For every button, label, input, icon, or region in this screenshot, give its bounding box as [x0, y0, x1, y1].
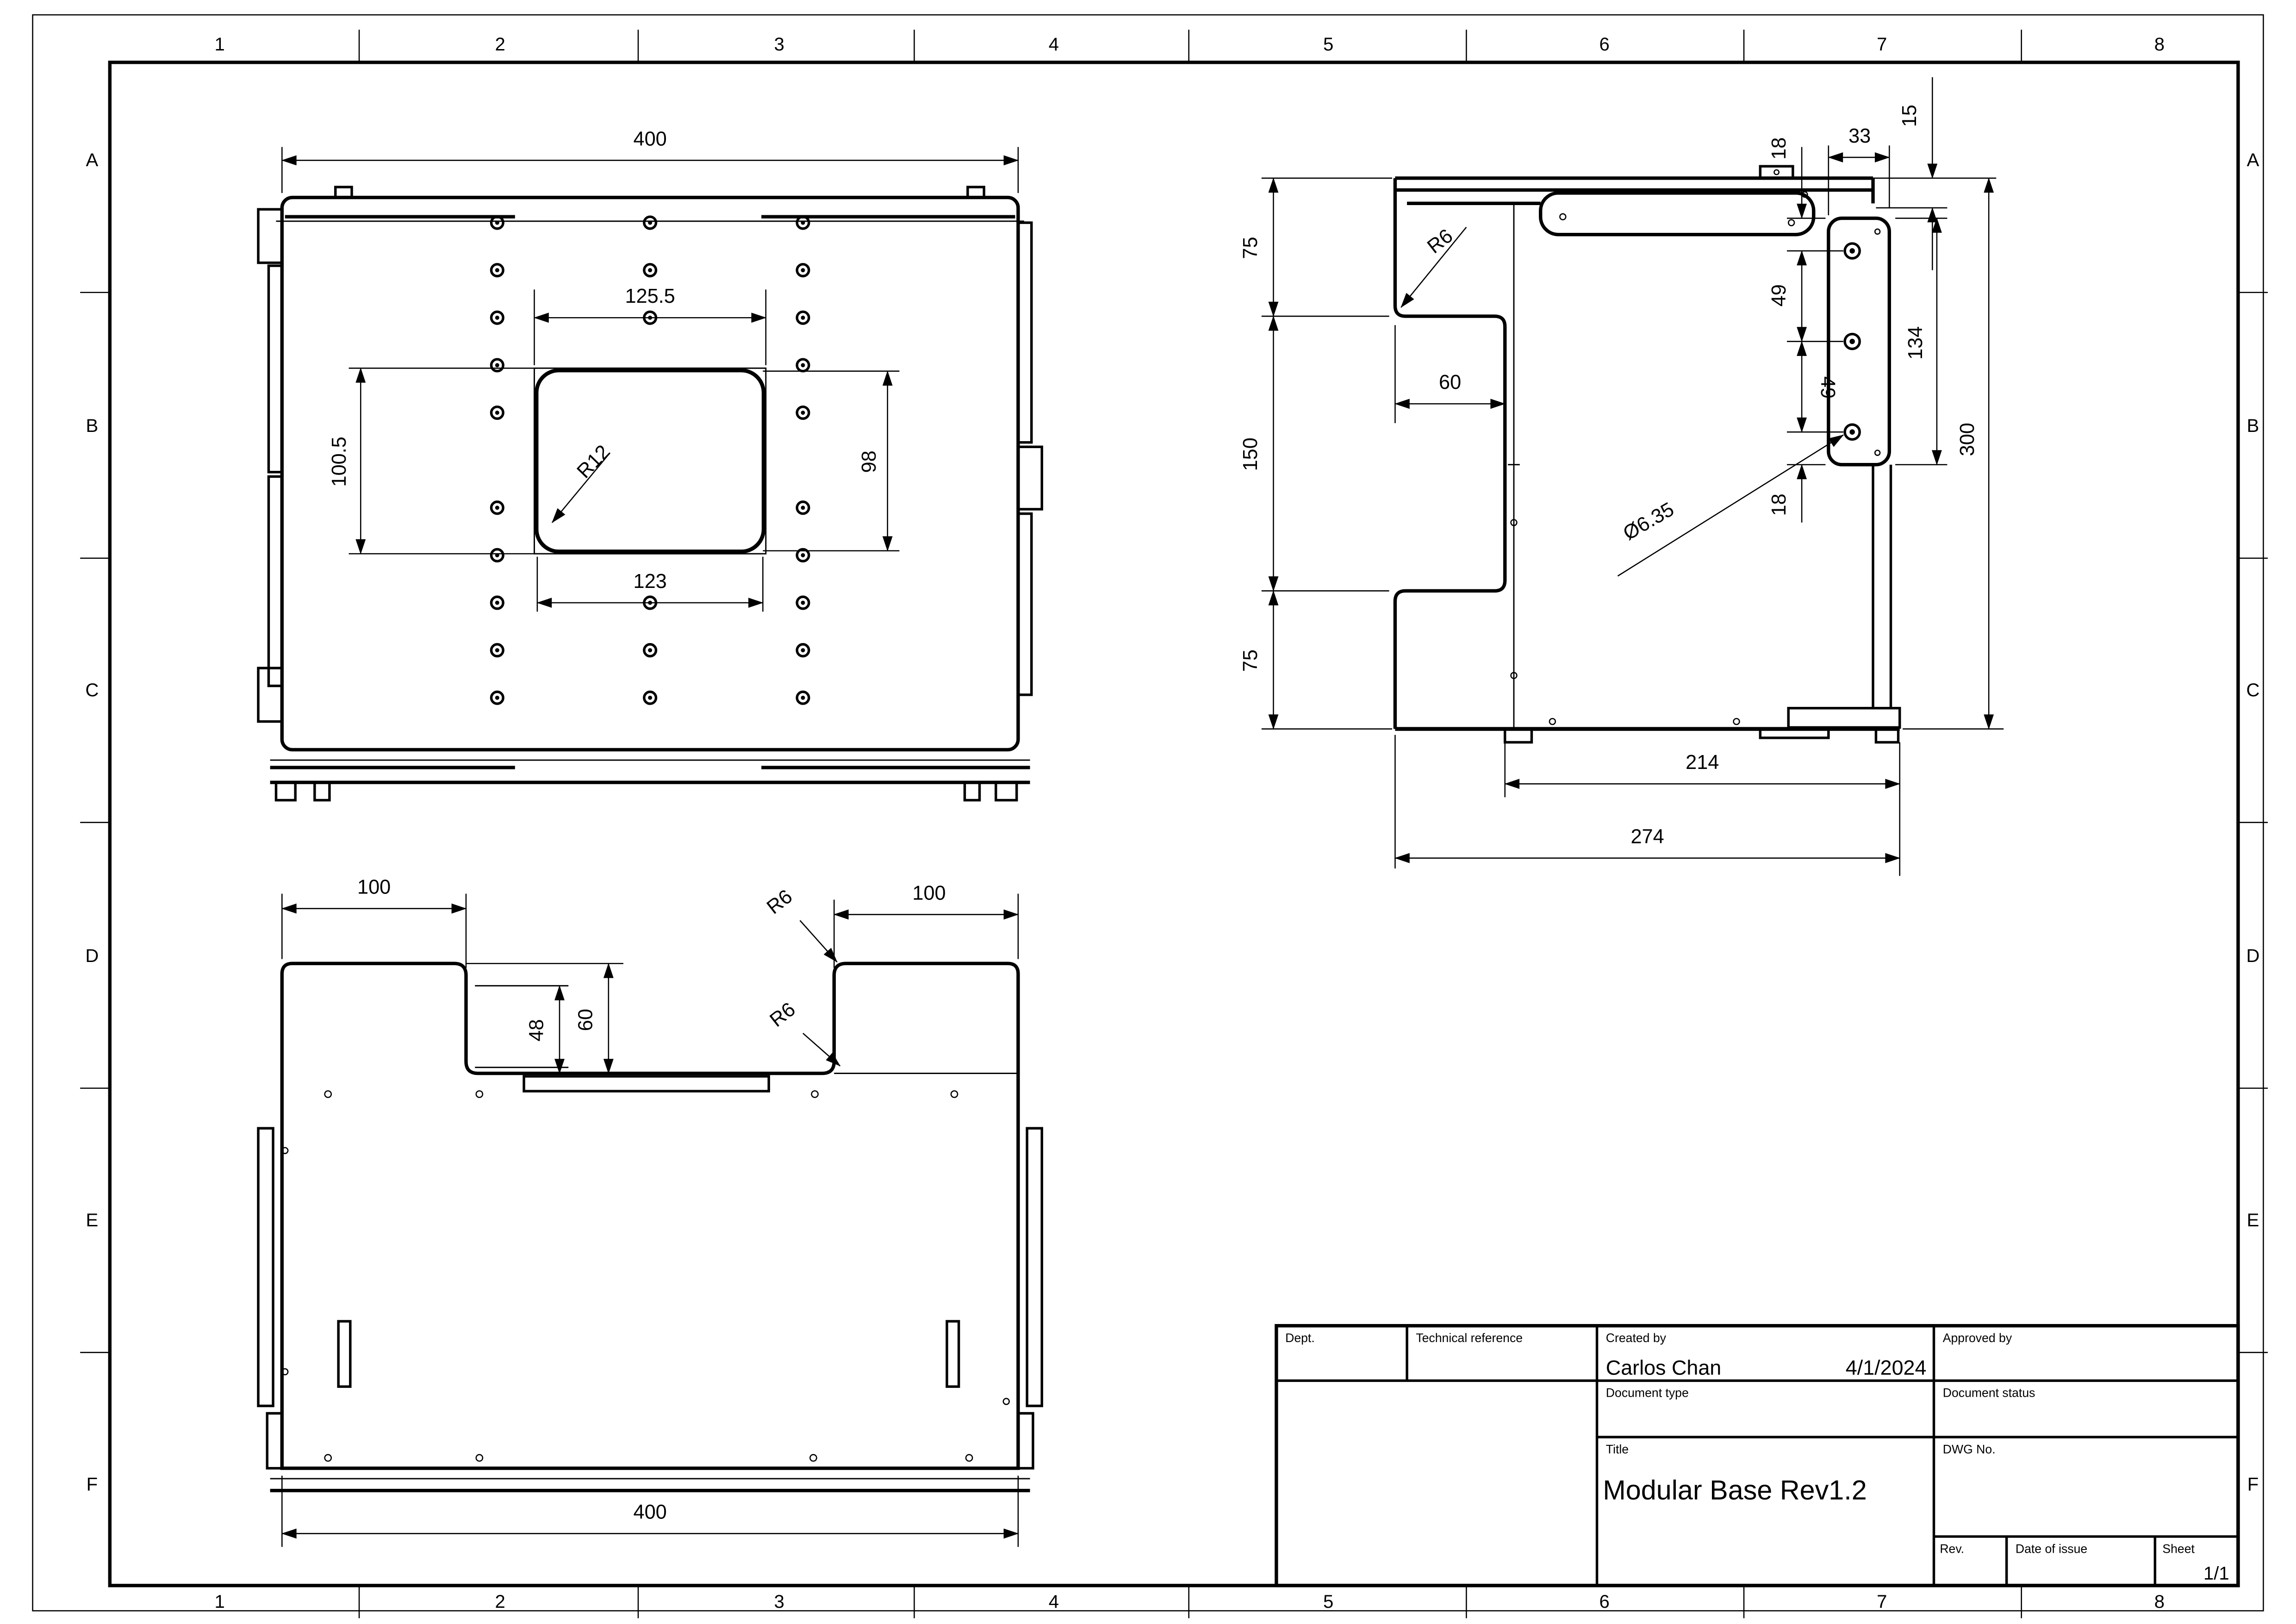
svg-text:R6: R6: [763, 885, 796, 918]
hole-center: [495, 268, 499, 272]
document-type-label: Document type: [1606, 1386, 1689, 1400]
approved-by-label: Approved by: [1943, 1331, 2012, 1345]
svg-text:100: 100: [912, 882, 946, 904]
created-by-label: Created by: [1606, 1331, 1667, 1345]
dim-notch-inner: 48: [526, 986, 560, 1073]
svg-text:R12: R12: [572, 441, 614, 482]
dim-side-left: 75 150 75: [1239, 178, 1392, 729]
svg-text:49: 49: [1817, 376, 1839, 399]
top-view: 400 125.5 123 100.5 98 R12: [258, 128, 1042, 800]
svg-text:400: 400: [633, 1501, 666, 1524]
grid-col-label: 6: [1599, 34, 1609, 55]
hole-center: [801, 600, 805, 605]
svg-text:75: 75: [1239, 237, 1262, 259]
grid-row-label: D: [85, 946, 99, 966]
document-status-label: Document status: [1943, 1386, 2035, 1400]
dim-corner-radius: R12: [552, 441, 614, 523]
grid-row-label: E: [86, 1210, 98, 1230]
grid-col-label: 3: [774, 34, 784, 55]
hole-center: [801, 696, 805, 700]
grid-row-labels: A B C D E F A B C D E F: [85, 150, 2259, 1495]
central-cutout: [536, 370, 764, 551]
grid-col-label: 2: [495, 34, 505, 55]
sheet-value: 1/1: [2203, 1563, 2229, 1584]
dim-tab-right: 100: [834, 882, 1018, 968]
svg-text:18: 18: [1768, 137, 1790, 160]
hole-center: [495, 696, 499, 700]
grid-col-label: 4: [1049, 34, 1059, 55]
grid-col-label: 8: [2154, 34, 2165, 55]
grid-col-label: 5: [1323, 1592, 1333, 1612]
grid-row-label: F: [2247, 1474, 2259, 1495]
front-holes-bottom: [325, 1455, 972, 1461]
grid-row-label: E: [2247, 1210, 2259, 1230]
sheet-label: Sheet: [2162, 1542, 2195, 1555]
svg-text:33: 33: [1848, 125, 1871, 147]
svg-text:R6: R6: [765, 998, 799, 1031]
grid-row-label: A: [2247, 150, 2259, 170]
dim-cutout-left: 100.5: [328, 368, 537, 554]
svg-text:125.5: 125.5: [625, 285, 675, 307]
title-label: Title: [1606, 1442, 1629, 1456]
hole-center: [495, 506, 499, 510]
dim-front-fillet-top: R6: [763, 885, 837, 962]
drawing-title: Modular Base Rev1.2: [1603, 1474, 1867, 1505]
grid-col-label: 1: [214, 1592, 224, 1612]
hole-center: [801, 648, 805, 652]
grid-row-label: A: [86, 150, 98, 170]
dept-label: Dept.: [1285, 1331, 1315, 1345]
dim-tab-left: 100: [282, 876, 466, 968]
grid-col-label: 5: [1323, 34, 1333, 55]
dim-front-fillet-bottom: R6: [765, 998, 840, 1066]
svg-text:18: 18: [1768, 493, 1790, 516]
svg-text:100: 100: [357, 876, 391, 899]
hole-center: [801, 221, 805, 225]
bottom-feet: [276, 782, 1016, 800]
svg-text:60: 60: [1439, 371, 1461, 394]
hole-center: [801, 268, 805, 272]
hole-center: [801, 316, 805, 320]
grid-row-label: C: [2246, 680, 2260, 700]
svg-text:75: 75: [1239, 650, 1262, 672]
dim-notch-depth: 60: [1395, 325, 1505, 423]
grid-col-label: 4: [1049, 1592, 1059, 1612]
drawing-sheet: 1 2 3 4 5 6 7 8 1 2 3 4 5 6 7 8 A B C D …: [0, 0, 2296, 1624]
grid-row-label: B: [86, 416, 98, 436]
dwg-no-label: DWG No.: [1943, 1442, 1996, 1456]
svg-text:60: 60: [575, 1009, 597, 1031]
date-of-issue-label: Date of issue: [2016, 1542, 2087, 1555]
svg-text:214: 214: [1686, 751, 1719, 774]
hole-center: [801, 553, 805, 557]
dim-cutout-top: 125.5: [534, 285, 765, 365]
side-view: 75 150 75 60 R6 18 33 15: [1239, 77, 2004, 876]
svg-text:400: 400: [633, 128, 666, 150]
grid-row-label: C: [85, 680, 99, 700]
svg-text:49: 49: [1768, 284, 1790, 306]
hole-center: [495, 316, 499, 320]
dim-front-notch-depth: 60: [466, 963, 623, 1073]
dim-inner-width: 214: [1505, 742, 1900, 876]
dim-hole-chain: 49 49 18: [1768, 218, 1843, 522]
dim-plate-height: 134: [1895, 218, 1947, 464]
mounting-holes: [1845, 229, 1880, 456]
svg-text:15: 15: [1898, 105, 1921, 127]
hole-center: [648, 221, 652, 225]
grid-col-label: 1: [214, 34, 224, 55]
hole-center: [495, 411, 499, 415]
hole-center: [801, 506, 805, 510]
technical-reference-label: Technical reference: [1416, 1331, 1523, 1345]
grid-col-label: 3: [774, 1592, 784, 1612]
dim-400-top: 400: [282, 128, 1018, 193]
grid-col-label: 6: [1599, 1592, 1609, 1612]
title-block: Dept. Technical reference Created by Car…: [1276, 1326, 2238, 1586]
svg-text:300: 300: [1956, 423, 1979, 456]
grid-row-label: B: [2247, 416, 2259, 436]
svg-text:48: 48: [526, 1019, 548, 1041]
svg-text:274: 274: [1630, 825, 1664, 848]
dim-400-bottom: 400: [282, 1476, 1018, 1547]
grid-row-label: D: [2246, 946, 2260, 966]
svg-text:134: 134: [1904, 326, 1927, 360]
grid-row-label: F: [87, 1474, 98, 1495]
hole-center: [648, 268, 652, 272]
svg-text:98: 98: [858, 450, 880, 473]
dim-overall-width: 274: [1395, 735, 1899, 868]
svg-text:100.5: 100.5: [328, 437, 350, 487]
svg-text:123: 123: [633, 570, 666, 593]
svg-text:R6: R6: [1423, 225, 1457, 258]
created-date: 4/1/2024: [1846, 1356, 1927, 1380]
hole-center: [495, 648, 499, 652]
dim-hole-diameter: Ø6.35: [1618, 435, 1843, 576]
grid-col-label: 8: [2154, 1592, 2165, 1612]
dim-overall-height: 300: [1903, 178, 2004, 729]
dim-plate-width: 33: [1829, 125, 1889, 215]
grid-col-label: 7: [1877, 34, 1887, 55]
dim-plate-offset: 15: [1873, 77, 1996, 270]
created-by-value: Carlos Chan: [1606, 1356, 1721, 1380]
grid-col-label: 7: [1877, 1592, 1887, 1612]
hole-center: [648, 696, 652, 700]
dim-notch-fillet: R6: [1401, 225, 1466, 307]
hole-center: [801, 363, 805, 367]
svg-text:Ø6.35: Ø6.35: [1619, 498, 1678, 545]
rev-label: Rev.: [1940, 1542, 1964, 1555]
hole-center: [495, 600, 499, 605]
hole-center: [648, 648, 652, 652]
grid-col-label: 2: [495, 1592, 505, 1612]
side-feet: [1505, 729, 1898, 743]
hole-center: [801, 411, 805, 415]
hole-center: [495, 363, 499, 367]
front-view: 100 100 48 60 R6 R6 400: [258, 876, 1042, 1547]
svg-text:150: 150: [1239, 437, 1262, 471]
dim-cutout-right: 98: [763, 371, 899, 551]
hole-center: [495, 221, 499, 225]
